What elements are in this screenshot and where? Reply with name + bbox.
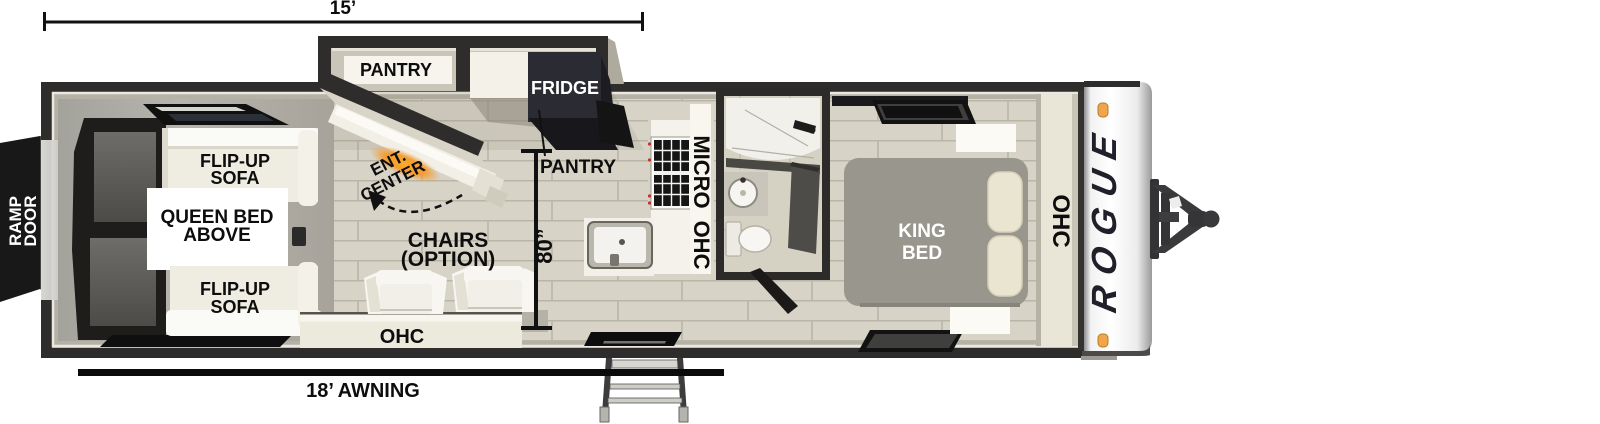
svg-text:DOOR: DOOR: [21, 196, 40, 247]
svg-text:18’ AWNING: 18’ AWNING: [306, 380, 420, 402]
svg-text:PANTRY: PANTRY: [540, 157, 616, 178]
svg-text:15’: 15’: [330, 0, 356, 19]
svg-text:FLIP-UP: FLIP-UP: [200, 279, 270, 299]
svg-text:FRIDGE: FRIDGE: [531, 78, 599, 98]
svg-text:BED: BED: [902, 243, 942, 264]
svg-text:OHC: OHC: [689, 221, 714, 270]
svg-text:SOFA: SOFA: [210, 297, 259, 317]
svg-text:OHC: OHC: [380, 326, 424, 348]
svg-text:(OPTION): (OPTION): [401, 248, 496, 271]
svg-text:MICRO: MICRO: [689, 135, 714, 208]
svg-text:KING: KING: [898, 221, 946, 242]
svg-text:PANTRY: PANTRY: [360, 60, 432, 80]
svg-text:OHC: OHC: [1047, 194, 1074, 247]
svg-text:SOFA: SOFA: [210, 168, 259, 188]
svg-text:ROGUE: ROGUE: [1085, 119, 1124, 315]
svg-text:80”: 80”: [532, 228, 557, 263]
svg-text:ABOVE: ABOVE: [183, 225, 251, 246]
